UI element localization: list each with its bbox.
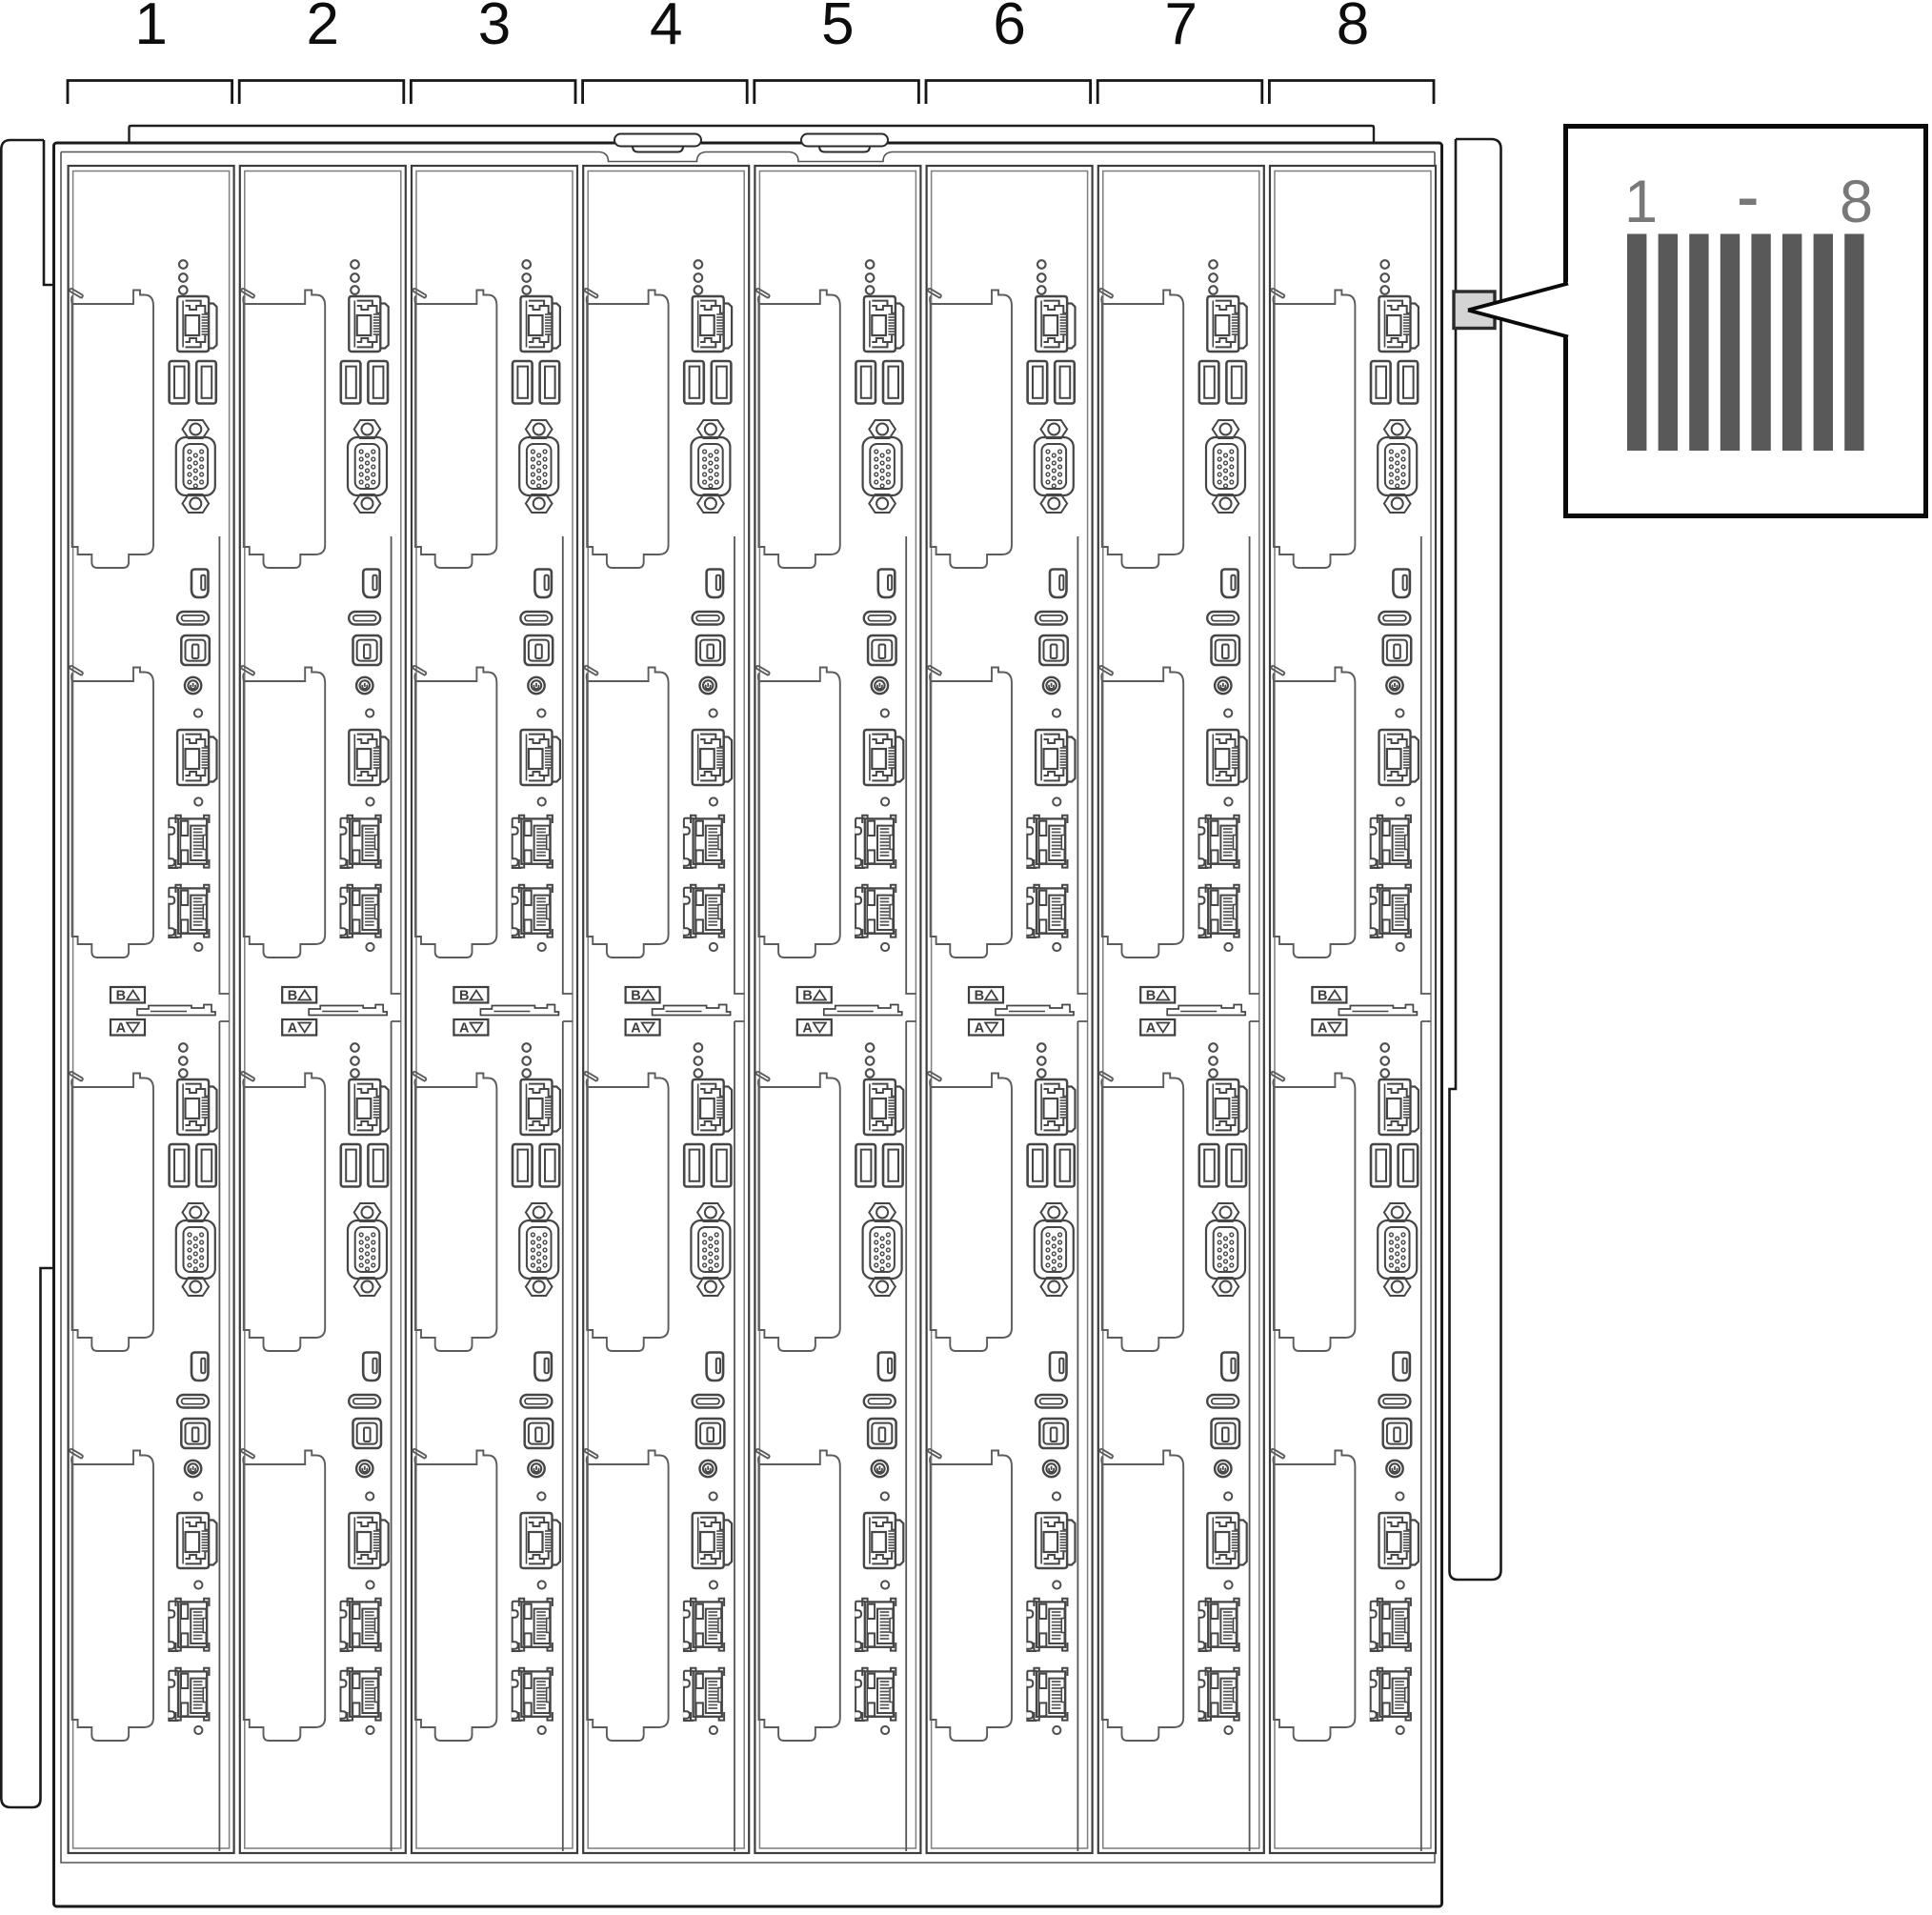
svg-text:5: 5: [821, 0, 854, 57]
svg-text:8: 8: [1840, 169, 1873, 235]
svg-text:3: 3: [478, 0, 511, 57]
svg-text:2: 2: [307, 0, 339, 57]
svg-text:8: 8: [1337, 0, 1369, 57]
svg-text:1: 1: [1624, 169, 1658, 235]
svg-text:6: 6: [993, 0, 1025, 57]
svg-text:7: 7: [1165, 0, 1197, 57]
svg-text:4: 4: [650, 0, 682, 57]
svg-text:1: 1: [134, 0, 167, 57]
